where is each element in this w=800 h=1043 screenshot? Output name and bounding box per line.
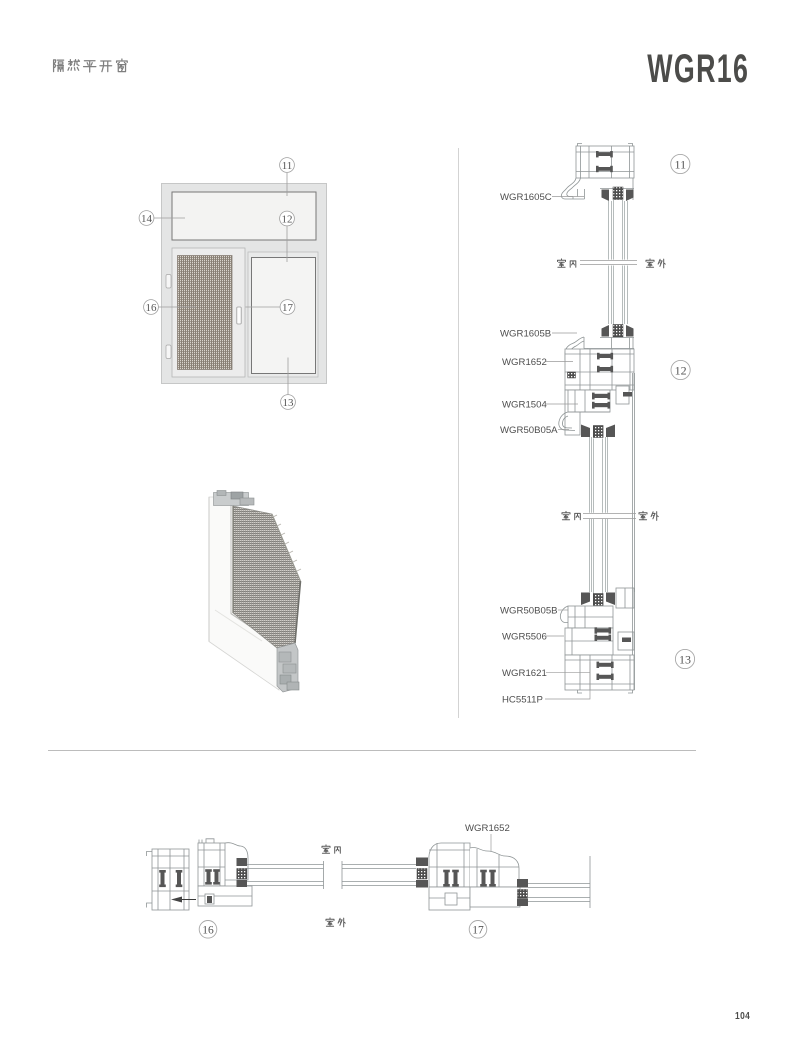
svg-text:16: 16: [146, 302, 158, 314]
svg-text:WGR1605C: WGR1605C: [500, 192, 552, 203]
svg-text:13: 13: [679, 652, 691, 666]
svg-text:WGR1621: WGR1621: [502, 668, 547, 679]
svg-text:WGR50B05B: WGR50B05B: [500, 606, 558, 617]
svg-text:HC5511P: HC5511P: [502, 695, 543, 706]
svg-text:WGR5506: WGR5506: [502, 632, 547, 643]
svg-text:17: 17: [472, 924, 484, 936]
svg-text:12: 12: [675, 363, 687, 377]
svg-text:WGR1504: WGR1504: [502, 400, 547, 411]
svg-text:WGR50B05A: WGR50B05A: [500, 425, 558, 436]
svg-text:WGR1652: WGR1652: [502, 357, 547, 368]
svg-text:WGR1652: WGR1652: [465, 823, 510, 834]
svg-text:11: 11: [675, 157, 687, 171]
svg-text:13: 13: [283, 397, 295, 409]
svg-text:12: 12: [282, 213, 293, 225]
svg-text:16: 16: [202, 924, 214, 936]
svg-text:WGR1605B: WGR1605B: [500, 329, 551, 340]
svg-text:17: 17: [282, 302, 294, 314]
svg-text:11: 11: [282, 160, 293, 172]
svg-text:14: 14: [141, 213, 153, 225]
